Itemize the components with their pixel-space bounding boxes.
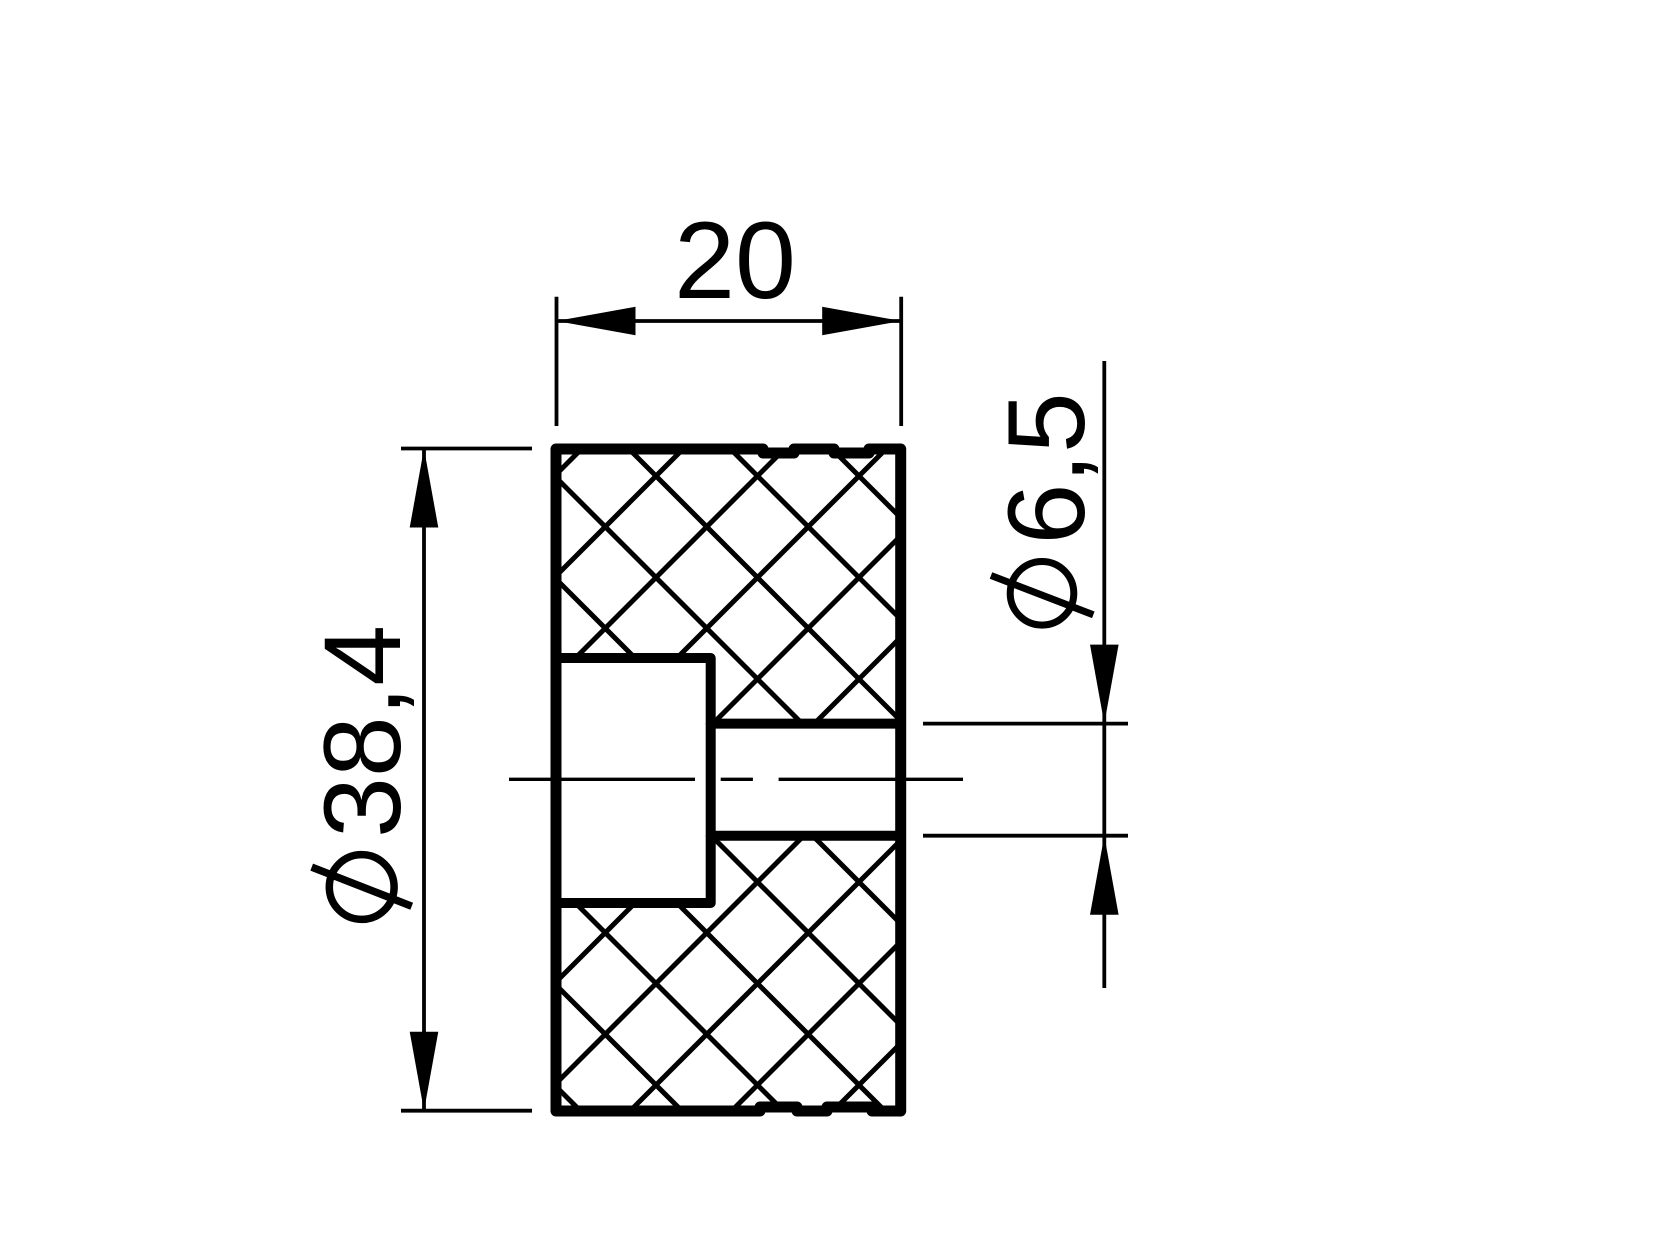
svg-text:20: 20: [674, 200, 796, 322]
svg-text:6,5: 6,5: [986, 392, 1108, 544]
svg-text:38,4: 38,4: [302, 625, 424, 838]
